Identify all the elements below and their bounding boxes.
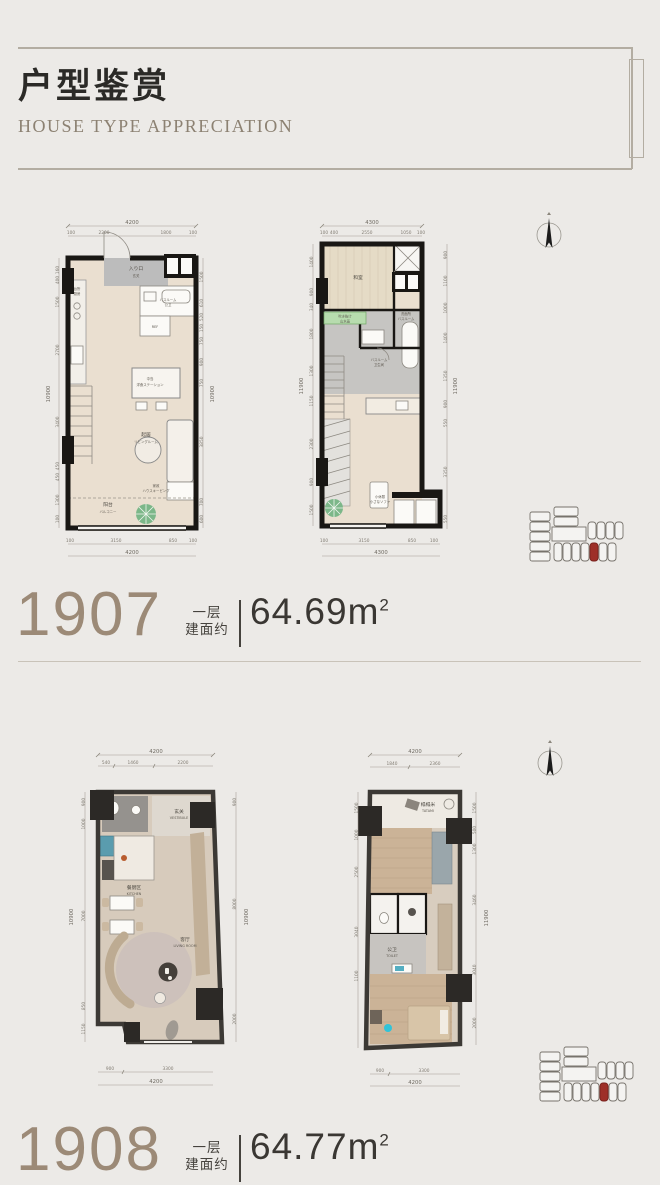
svg-text:洗面所: 洗面所 [401, 311, 412, 316]
header-frame-tab [629, 59, 644, 158]
svg-text:100: 100 [66, 538, 74, 544]
area-value: 64.77m2 [250, 1126, 390, 1168]
plant-icon [136, 504, 156, 524]
svg-text:ハウスキーピング: ハウスキーピング [142, 488, 170, 493]
plant-icon [325, 499, 343, 517]
svg-text:公卫: 公卫 [165, 303, 172, 307]
svg-text:900: 900 [199, 358, 205, 366]
svg-text:餐厨区: 餐厨区 [127, 884, 142, 891]
svg-text:山水画: 山水画 [340, 319, 351, 324]
svg-text:1100: 1100 [443, 275, 449, 286]
svg-text:2200: 2200 [178, 760, 189, 766]
svg-text:1500: 1500 [55, 296, 61, 307]
svg-text:1500: 1500 [472, 802, 478, 813]
svg-text:4200: 4200 [125, 220, 139, 226]
svg-text:3040: 3040 [354, 926, 360, 937]
svg-text:4200: 4200 [408, 1080, 422, 1086]
svg-text:客厅: 客厅 [180, 936, 190, 943]
svg-text:2000: 2000 [232, 1013, 238, 1024]
shaft [394, 244, 422, 272]
svg-text:10900: 10900 [46, 385, 52, 402]
svg-text:1500: 1500 [199, 271, 205, 282]
sink-unit [100, 836, 114, 856]
svg-text:10900: 10900 [69, 908, 75, 925]
svg-text:バスルーム: バスルーム [160, 297, 177, 302]
upper-bedroom [370, 828, 452, 894]
highlighted-unit-1908 [600, 1083, 608, 1101]
svg-text:和室: 和室 [353, 274, 363, 281]
svg-text:1150: 1150 [309, 395, 315, 406]
area-approx-label: 建面约 [180, 1156, 234, 1173]
svg-text:REF: REF [152, 325, 158, 329]
svg-text:厨房: 厨房 [74, 291, 81, 296]
svg-text:3300: 3300 [419, 1068, 430, 1074]
svg-text:550: 550 [443, 419, 449, 427]
svg-text:バスルーム: バスルーム [398, 316, 415, 321]
svg-text:1400: 1400 [443, 332, 449, 343]
svg-text:3400: 3400 [55, 416, 61, 427]
svg-text:4300: 4300 [365, 220, 379, 226]
svg-text:900: 900 [309, 288, 315, 296]
svg-text:900: 900 [443, 251, 449, 259]
svg-text:450: 450 [55, 462, 61, 470]
lower-bedroom [370, 974, 452, 1044]
floorplan-1907-level-1: 入り口 玄关 台所 厨房 バスルーム 公卫 REF 中岛 洋食ステーション 起居… [46, 214, 226, 574]
floor-label: 一层 [180, 1139, 234, 1156]
svg-text:10900: 10900 [244, 908, 250, 925]
svg-text:100: 100 [189, 538, 197, 544]
svg-text:10900: 10900 [210, 385, 216, 402]
house-type-page: 户型鉴赏 HOUSE TYPE APPRECIATION [0, 0, 660, 1185]
island-counter [366, 398, 420, 414]
svg-text:160: 160 [55, 266, 61, 274]
svg-text:榻榻米: 榻榻米 [421, 801, 436, 808]
compass-north-icon [535, 211, 563, 253]
svg-text:3150: 3150 [359, 538, 370, 544]
section-divider [18, 661, 641, 662]
svg-text:中岛: 中岛 [147, 376, 154, 381]
svg-text:1840: 1840 [387, 761, 398, 767]
toilet-corridor [370, 934, 426, 974]
svg-text:1150: 1150 [81, 1023, 87, 1034]
svg-text:610: 610 [199, 299, 205, 307]
site-plan-key-1908 [538, 1046, 638, 1110]
svg-text:小さなソファ: 小さなソファ [370, 499, 390, 504]
svg-text:玄关: 玄关 [133, 273, 140, 278]
svg-text:1800: 1800 [161, 230, 172, 236]
svg-text:阳台: 阳台 [103, 501, 113, 508]
svg-text:3350: 3350 [443, 466, 449, 477]
svg-text:公卫: 公卫 [387, 947, 397, 953]
svg-text:100: 100 [320, 538, 328, 544]
site-plan-key-1907 [528, 506, 628, 570]
unit-number: 1908 [16, 1118, 162, 1182]
svg-text:1300: 1300 [309, 365, 315, 376]
unit-number: 1907 [16, 583, 162, 647]
divider-bar [239, 600, 241, 647]
wardrobe [438, 904, 452, 970]
svg-text:入り口: 入り口 [129, 266, 144, 272]
svg-text:900: 900 [106, 1066, 114, 1072]
svg-text:100: 100 [430, 538, 438, 544]
svg-text:150: 150 [199, 324, 205, 332]
svg-text:540: 540 [102, 760, 110, 766]
svg-text:11900: 11900 [299, 377, 305, 394]
svg-text:1100: 1100 [354, 970, 360, 981]
svg-text:1300: 1300 [55, 494, 61, 505]
svg-text:2000: 2000 [472, 1017, 478, 1028]
svg-text:1300: 1300 [472, 843, 478, 854]
svg-text:750: 750 [199, 337, 205, 345]
svg-text:520: 520 [199, 313, 205, 321]
svg-text:100: 100 [320, 230, 328, 236]
svg-text:850: 850 [169, 538, 177, 544]
svg-text:900: 900 [443, 400, 449, 408]
floorplan-1908-level-1: 玄关 VESTIBULE 餐厨区 KITCHEN 客厅 LIVING ROOM … [52, 742, 300, 1118]
svg-text:450: 450 [55, 473, 61, 481]
svg-text:850: 850 [408, 538, 416, 544]
svg-text:900: 900 [81, 798, 87, 806]
svg-text:1400: 1400 [309, 256, 315, 267]
svg-text:4300: 4300 [374, 550, 388, 556]
svg-text:100: 100 [417, 230, 425, 236]
svg-text:2200: 2200 [99, 230, 110, 236]
svg-text:1350: 1350 [443, 370, 449, 381]
svg-text:550: 550 [443, 515, 449, 523]
unit-1907-summary: 1907 一层 建面约 64.69m2 [0, 583, 660, 663]
svg-text:2550: 2550 [362, 230, 373, 236]
svg-text:400: 400 [330, 230, 338, 236]
svg-text:4200: 4200 [408, 749, 422, 755]
svg-text:2700: 2700 [55, 344, 61, 355]
divider-bar [239, 1135, 241, 1182]
header-frame-top-line [18, 47, 632, 49]
svg-text:340: 340 [309, 303, 315, 311]
svg-text:400: 400 [55, 276, 61, 284]
svg-text:3040: 3040 [472, 964, 478, 975]
loft-tag: 吹き抜け 山水画 [324, 312, 366, 324]
svg-text:3850: 3850 [199, 436, 205, 447]
svg-text:バルコニー: バルコニー [100, 510, 117, 514]
svg-text:4200: 4200 [125, 550, 139, 556]
page-subtitle: HOUSE TYPE APPRECIATION [18, 116, 293, 137]
svg-text:3150: 3150 [111, 538, 122, 544]
highlighted-unit-1907 [590, 543, 598, 561]
area-approx-label: 建面约 [180, 621, 234, 638]
header-frame-bottom-line [18, 168, 632, 170]
svg-text:小休憩: 小休憩 [375, 494, 386, 499]
svg-text:起居: 起居 [141, 432, 151, 438]
svg-text:TATAMI: TATAMI [421, 809, 434, 813]
svg-text:900: 900 [232, 798, 238, 806]
svg-text:1500: 1500 [354, 802, 360, 813]
svg-text:1000: 1000 [443, 302, 449, 313]
svg-text:1050: 1050 [401, 230, 412, 236]
svg-text:リビングルーム: リビングルーム [134, 439, 158, 444]
svg-text:KITCHEN: KITCHEN [127, 892, 142, 896]
floorplan-1908-level-2: 榻榻米 TATAMI 公卫 TOILET 4200 1840 2360 1500… [336, 742, 540, 1118]
svg-text:100: 100 [55, 515, 61, 523]
svg-text:1460: 1460 [128, 760, 139, 766]
svg-text:吹き抜け: 吹き抜け [338, 314, 352, 319]
svg-text:600: 600 [199, 515, 205, 523]
svg-text:11900: 11900 [484, 909, 490, 926]
svg-text:8000: 8000 [232, 898, 238, 909]
svg-text:3300: 3300 [163, 1066, 174, 1072]
svg-text:900: 900 [309, 478, 315, 486]
svg-text:1500: 1500 [309, 504, 315, 515]
svg-text:1800: 1800 [309, 328, 315, 339]
unit-1908-summary: 1908 一层 建面约 64.77m2 [0, 1118, 660, 1185]
svg-text:LIVING ROOM: LIVING ROOM [173, 944, 196, 948]
svg-text:3460: 3460 [472, 894, 478, 905]
floor-label: 一层 [180, 604, 234, 621]
svg-text:洋食ステーション: 洋食ステーション [136, 382, 164, 387]
page-title: 户型鉴赏 [18, 58, 170, 109]
svg-text:100: 100 [67, 230, 75, 236]
bath-cells [370, 894, 426, 934]
svg-text:2300: 2300 [309, 438, 315, 449]
svg-text:VESTIBULE: VESTIBULE [170, 816, 189, 820]
svg-text:2360: 2360 [430, 761, 441, 767]
compass-north-icon [536, 739, 564, 781]
svg-text:卫生间: 卫生间 [374, 362, 385, 367]
svg-text:TOILET: TOILET [385, 954, 399, 958]
floorplan-1907-level-2: 吹き抜け 山水画 和室 洗面所 バスルーム バスルーム 卫生间 小休憩 小さなソ… [282, 214, 518, 574]
svg-text:7000: 7000 [81, 910, 87, 921]
svg-text:900: 900 [376, 1068, 384, 1074]
svg-text:100: 100 [189, 230, 197, 236]
svg-text:台所: 台所 [74, 286, 81, 291]
svg-text:11900: 11900 [453, 377, 459, 394]
area-value: 64.69m2 [250, 591, 390, 633]
svg-text:500: 500 [472, 826, 478, 834]
svg-text:家政: 家政 [153, 483, 160, 488]
svg-text:4200: 4200 [149, 749, 163, 755]
svg-text:2500: 2500 [354, 866, 360, 877]
svg-text:4200: 4200 [149, 1079, 163, 1085]
svg-text:1000: 1000 [81, 818, 87, 829]
svg-text:700: 700 [199, 498, 205, 506]
svg-text:バスルーム: バスルーム [371, 357, 388, 362]
svg-text:1000: 1000 [354, 829, 360, 840]
svg-text:750: 750 [199, 379, 205, 387]
svg-text:玄关: 玄关 [174, 808, 184, 815]
svg-text:850: 850 [81, 1002, 87, 1010]
